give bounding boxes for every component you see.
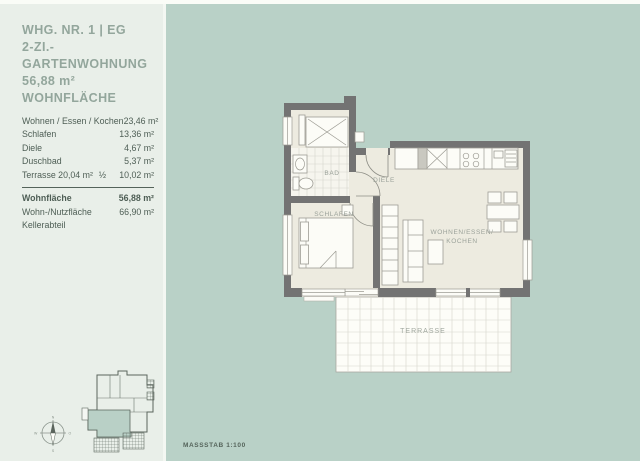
table-summary-row: Kellerabteil (22, 220, 154, 233)
row-label: Kellerabteil (22, 220, 90, 230)
compass-o: O (69, 432, 72, 436)
row-label: Schlafen (22, 129, 90, 139)
row-label: Wohnfläche (22, 193, 90, 203)
wardrobe-icon (382, 205, 398, 285)
dining-table-icon (487, 205, 519, 219)
radiator-icon (299, 115, 305, 145)
row-label: Wohn-/Nutzfläche (22, 207, 92, 217)
balcony-icon (147, 380, 154, 388)
row-label: Duschbad (22, 156, 90, 166)
table-row: Wohnen / Essen / Kochen 23,46 m² (22, 116, 154, 129)
kitchen (395, 148, 518, 169)
row-fraction: ½ (93, 170, 112, 180)
row-value: 23,46 m² (124, 116, 159, 126)
apartment-area: 56,88 m² WOHNFLÄCHE (22, 73, 172, 107)
floor-plan: TERRASSE (280, 94, 536, 376)
compass-n: N (52, 416, 55, 420)
room-label-terrasse: TERRASSE (400, 328, 446, 335)
table-summary-row: Wohn-/Nutzfläche 66,90 m² (22, 207, 154, 220)
row-value: 66,90 m² (111, 207, 154, 217)
row-value: 5,37 m² (110, 156, 154, 166)
apartment-header: WHG. NR. 1 | EG 2-ZI.- GARTENWOHNUNG 56,… (22, 22, 172, 107)
row-label: Diele (22, 143, 90, 153)
apartment-type: 2-ZI.- GARTENWOHNUNG (22, 39, 172, 73)
room-label-schlafen: SCHLAFEN (314, 211, 353, 218)
area-table: Wohnen / Essen / Kochen 23,46 m² Schlafe… (22, 116, 154, 234)
table-divider (22, 187, 154, 188)
terrace-hatch-icon (94, 438, 119, 452)
table-row: Diele 4,67 m² (22, 143, 154, 156)
chair-icon (504, 221, 517, 232)
balcony-icon (147, 392, 154, 400)
terrace-hatch-icon (123, 433, 144, 449)
row-value: 4,67 m² (110, 143, 154, 153)
table-row: Terrasse 20,04 m² ½ 10,02 m² (22, 170, 154, 183)
row-value: 10,02 m² (112, 170, 154, 180)
pillow-icon (301, 222, 309, 241)
chair-icon (504, 192, 517, 203)
table-row: Schlafen 13,36 m² (22, 129, 154, 142)
key-plan-building (82, 371, 154, 452)
site-key-plan: N O S W (30, 368, 166, 461)
room-label-bad: BAD (324, 170, 339, 177)
chair-icon (488, 192, 501, 203)
room-label-wohnen-1: WOHNEN/ESSEN/ (430, 229, 493, 236)
bathroom: BAD (291, 115, 349, 196)
compass-s: S (52, 449, 55, 453)
table-row: Duschbad 5,37 m² (22, 156, 154, 169)
apartment-number: WHG. NR. 1 | EG (22, 22, 172, 39)
row-value: 13,36 m² (110, 129, 154, 139)
pillow-icon (301, 245, 309, 264)
row-label: Wohnen / Essen / Kochen (22, 116, 124, 126)
room-label-wohnen-2: KOCHEN (446, 238, 477, 245)
row-label: Terrasse 20,04 m² (22, 170, 93, 180)
room-label-diele: DIELE (373, 177, 395, 184)
row-value: 56,88 m² (110, 193, 154, 203)
bay-icon (82, 408, 88, 420)
compass-icon: N O S W (34, 416, 72, 454)
scale-label: MASSSTAB 1:100 (183, 442, 246, 449)
kitchen-cabinet (418, 148, 427, 169)
coffee-table-icon (428, 240, 443, 264)
compass-w: W (34, 432, 38, 436)
table-summary-row: Wohnfläche 56,88 m² (22, 193, 154, 206)
floorplan-page: WHG. NR. 1 | EG 2-ZI.- GARTENWOHNUNG 56,… (0, 0, 640, 461)
terrace: TERRASSE (336, 297, 511, 372)
toilet-icon (293, 177, 299, 190)
